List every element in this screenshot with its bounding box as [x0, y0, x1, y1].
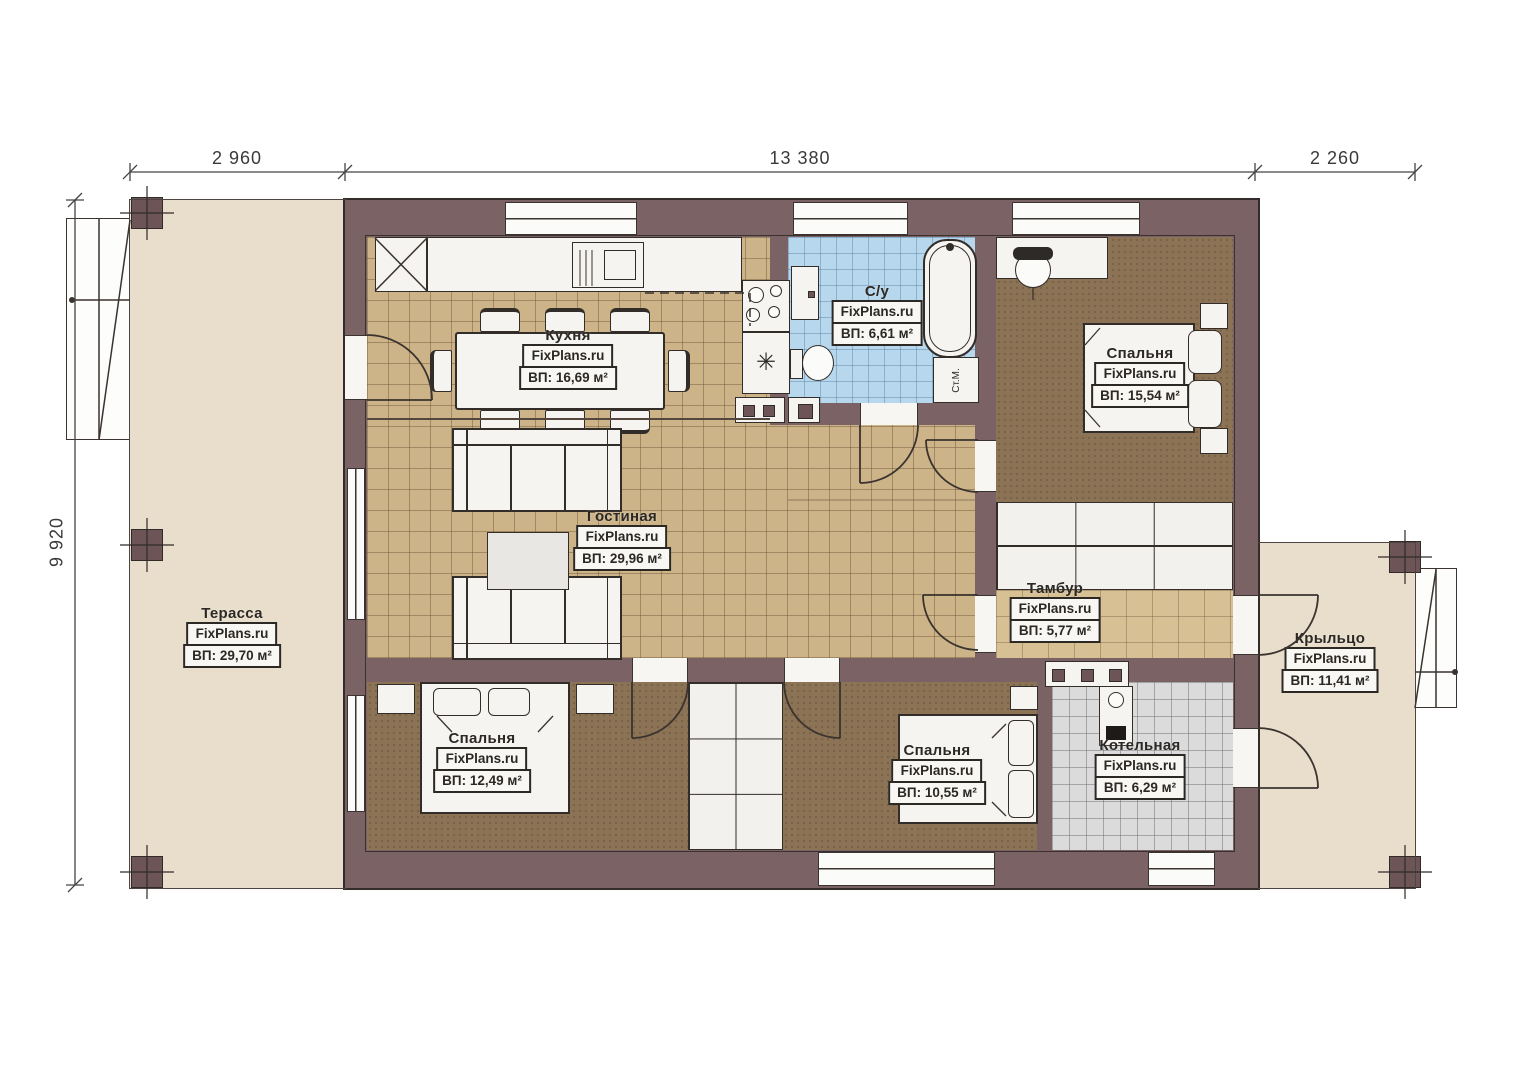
brand-watermark: FixPlans.ru	[577, 525, 668, 549]
window-bathroom	[793, 202, 908, 235]
window-boiler	[1148, 852, 1215, 886]
hall-cabinet-double	[735, 397, 785, 423]
door-gap-bedroom-mid	[784, 658, 840, 682]
room-label-living: Гостиная FixPlans.ru ВП: 29,96 м²	[573, 508, 671, 571]
brand-watermark: FixPlans.ru	[187, 622, 278, 646]
porch-stairs	[1415, 568, 1457, 708]
dim-height-left: 9 920	[47, 517, 68, 567]
door-gap-bedroom-left	[632, 658, 688, 682]
brand-watermark: FixPlans.ru	[437, 747, 528, 771]
room-area: ВП: 11,41 м²	[1282, 669, 1379, 693]
door-gap-vestibule	[975, 595, 996, 653]
room-title: С/у	[865, 283, 889, 300]
room-label-bedroom-mid: Спальня FixPlans.ru ВП: 10,55 м²	[888, 742, 986, 805]
boiler-cabinet-row	[1045, 661, 1129, 687]
room-area: ВП: 15,54 м²	[1091, 384, 1189, 408]
room-title: Котельная	[1099, 737, 1180, 754]
room-area: ВП: 29,96 м²	[573, 547, 671, 571]
pillow	[1188, 380, 1222, 428]
pillow	[1008, 770, 1034, 818]
pillow	[433, 688, 481, 716]
room-label-bedroom-left: Спальня FixPlans.ru ВП: 12,49 м²	[433, 730, 531, 793]
room-label-boiler: Котельная FixPlans.ru ВП: 6,29 м²	[1095, 737, 1186, 800]
room-title: Кухня	[545, 327, 590, 344]
brand-watermark: FixPlans.ru	[1010, 597, 1101, 621]
pillow	[488, 688, 530, 716]
room-label-vestibule: Тамбур FixPlans.ru ВП: 5,77 м²	[1010, 580, 1101, 643]
room-label-bathroom: С/у FixPlans.ru ВП: 6,61 м²	[832, 283, 923, 346]
brand-watermark: FixPlans.ru	[1095, 754, 1186, 778]
coffee-table	[487, 532, 569, 590]
room-label-porch: Крыльцо FixPlans.ru ВП: 11,41 м²	[1282, 630, 1379, 693]
nightstand	[377, 684, 415, 714]
pillow	[1188, 330, 1222, 374]
brand-watermark: FixPlans.ru	[1095, 362, 1186, 386]
stove-burner-2	[770, 285, 782, 297]
room-title: Спальня	[904, 742, 971, 759]
dim-width-left: 2 960	[212, 148, 262, 169]
stove-burner-1	[748, 287, 764, 303]
washbasin-vanity	[791, 266, 819, 320]
window-bedroom-mid	[818, 852, 995, 886]
window-living	[347, 468, 365, 620]
room-area: ВП: 6,61 м²	[832, 322, 922, 346]
wardrobe-block	[688, 682, 783, 850]
stove-burner-3	[746, 308, 760, 322]
toilet-bowl	[802, 345, 834, 381]
floorplan-page: { "plan": { "brand": "FixPlans.ru", "dim…	[0, 0, 1528, 1080]
washing-machine: Ст.М.	[933, 357, 979, 403]
kitchen-sink-bowl	[604, 250, 636, 280]
porch-outline	[1258, 542, 1416, 889]
nightstand	[576, 684, 614, 714]
brand-watermark: FixPlans.ru	[832, 300, 923, 324]
kitchen-corner-cabinet	[375, 237, 427, 292]
room-label-kitchen: Кухня FixPlans.ru ВП: 16,69 м²	[519, 327, 617, 390]
door-gap-bedroom-master	[975, 440, 996, 492]
dim-width-right: 2 260	[1310, 148, 1360, 169]
nightstand	[1010, 686, 1038, 710]
room-title: Терасса	[201, 605, 263, 622]
stove-burner-4	[768, 306, 780, 318]
room-title: Гостиная	[587, 508, 657, 525]
door-gap-terrace-kitchen	[345, 335, 367, 400]
bathtub-tap	[946, 243, 954, 251]
room-area: ВП: 16,69 м²	[519, 366, 617, 390]
room-title: Крыльцо	[1295, 630, 1365, 647]
room-area: ВП: 29,70 м²	[183, 644, 281, 668]
room-area: ВП: 6,29 м²	[1095, 776, 1185, 800]
room-title: Спальня	[1107, 345, 1174, 362]
desk-chair-back	[1013, 247, 1053, 260]
nightstand	[1200, 303, 1228, 329]
desk	[996, 237, 1108, 279]
bathtub-inner	[929, 245, 971, 352]
window-kitchen	[505, 202, 637, 235]
room-area: ВП: 10,55 м²	[888, 781, 986, 805]
room-area: ВП: 5,77 м²	[1010, 619, 1100, 643]
dining-chair	[430, 350, 452, 392]
room-label-terrace: Терасса FixPlans.ru ВП: 29,70 м²	[183, 605, 281, 668]
washing-machine-label: Ст.М.	[951, 368, 962, 393]
sofa-top	[452, 428, 622, 512]
boiler-dial	[1108, 692, 1124, 708]
room-title: Спальня	[449, 730, 516, 747]
dining-chair	[480, 308, 520, 332]
room-area: ВП: 12,49 м²	[433, 769, 531, 793]
brand-watermark: FixPlans.ru	[523, 344, 614, 368]
dim-width-center: 13 380	[769, 148, 830, 169]
nightstand	[1200, 428, 1228, 454]
door-gap-vestibule-porch	[1233, 595, 1258, 655]
brand-watermark: FixPlans.ru	[892, 759, 983, 783]
fridge-icon: ✳	[756, 351, 776, 375]
terrace-outline	[129, 199, 346, 889]
brand-watermark: FixPlans.ru	[1285, 647, 1376, 671]
door-gap-boiler-porch	[1233, 728, 1258, 788]
wardrobe-row	[996, 502, 1233, 546]
window-bedroom-master	[1012, 202, 1140, 235]
fridge: ✳	[742, 332, 790, 394]
bath-shaft-box	[788, 397, 820, 423]
room-title: Тамбур	[1027, 580, 1083, 597]
room-label-bedroom-master: Спальня FixPlans.ru ВП: 15,54 м²	[1091, 345, 1189, 408]
dining-chair	[668, 350, 690, 392]
stove	[742, 280, 790, 332]
pillow	[1008, 720, 1034, 766]
window-bedroom-left	[347, 695, 365, 812]
door-gap-bathroom	[860, 403, 918, 425]
terrace-stairs	[66, 218, 130, 440]
